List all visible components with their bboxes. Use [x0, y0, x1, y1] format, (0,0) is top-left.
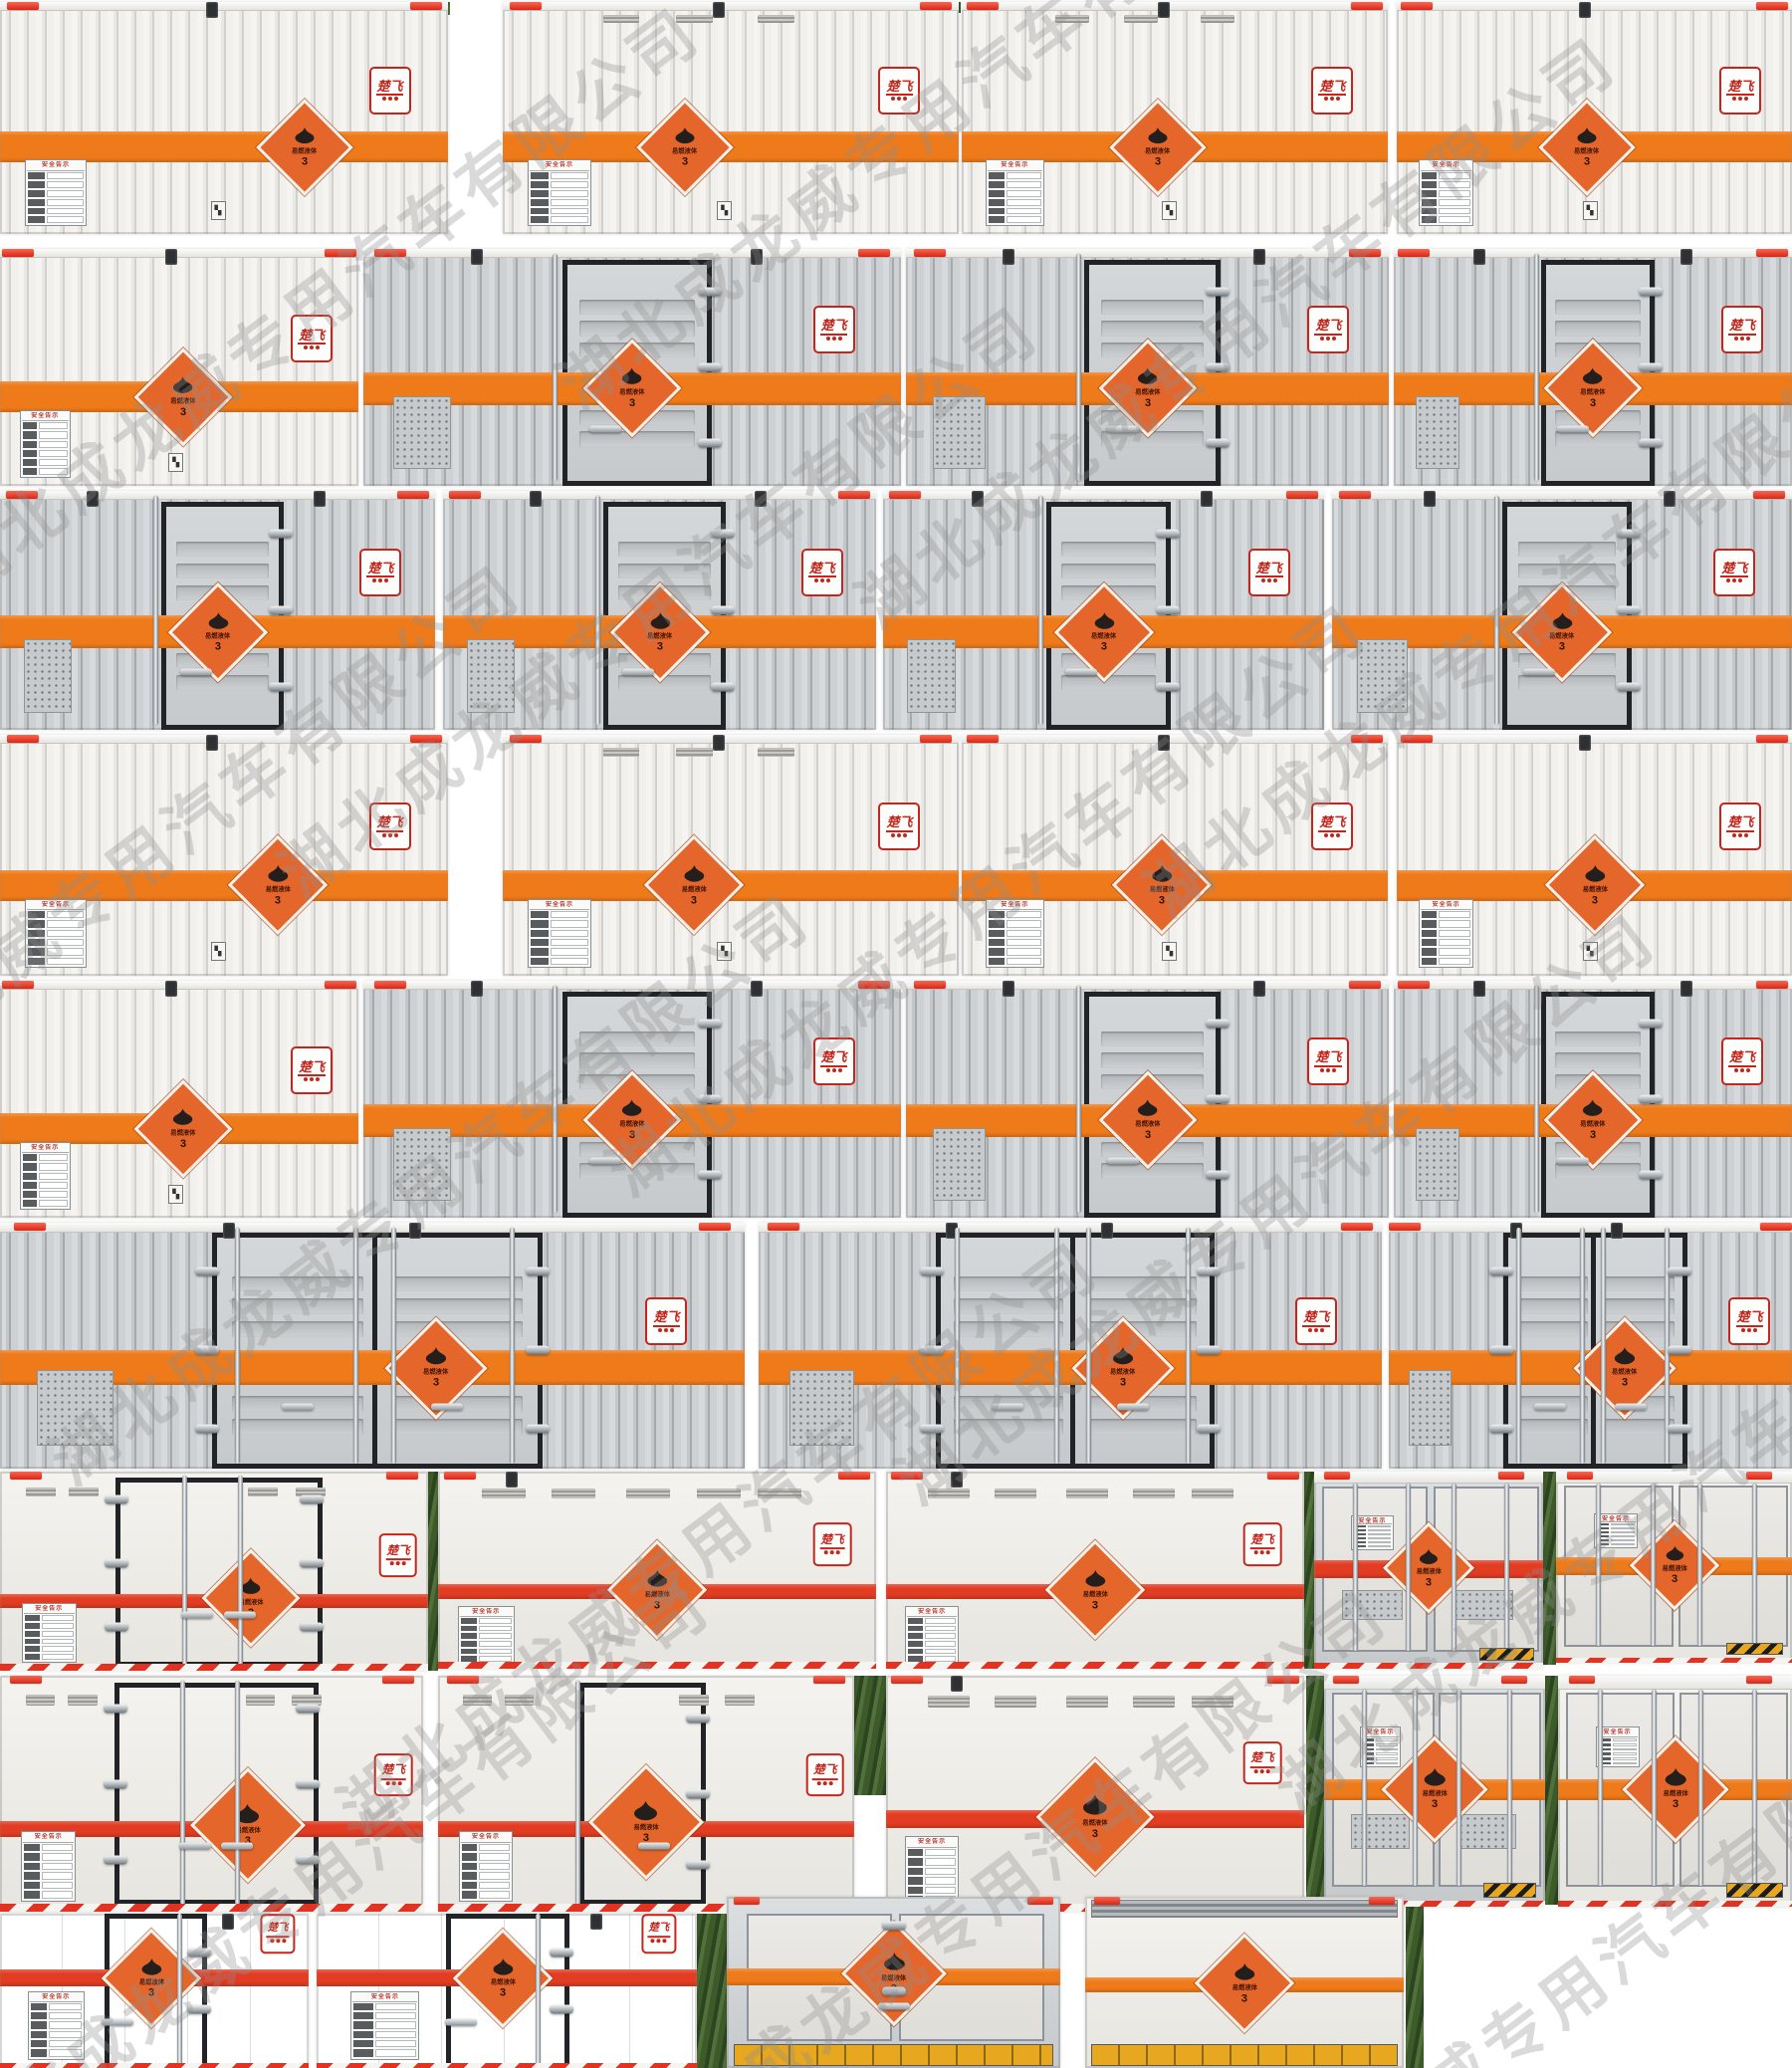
safety-notice-row-label: [28, 208, 46, 215]
placard-label: 易燃液体: [265, 885, 290, 894]
safety-notice-row-cell: [1439, 190, 1470, 197]
vent-louver: [1201, 15, 1234, 23]
safety-notice-row-label: [23, 450, 37, 457]
safety-notice-row-label: [23, 1191, 37, 1198]
placard-class-number: 3: [1241, 1993, 1247, 2004]
safety-notice-row: [530, 171, 589, 180]
brand-badge-text: 楚飞: [648, 1925, 669, 1936]
perforated-vent-grille: [24, 639, 72, 713]
safety-notice-row: [23, 1890, 74, 1900]
safety-notice-row-cell: [47, 939, 84, 946]
safety-notice-title: 安全告示: [22, 412, 69, 421]
safety-notice-row: [461, 1862, 511, 1872]
door-latch: [471, 981, 483, 997]
red-reflector: [914, 249, 946, 257]
safety-notice-row: [530, 919, 589, 928]
door-handle: [1615, 1404, 1647, 1411]
safety-notice-row-cell: [479, 1633, 512, 1639]
door-panel-recess: [579, 431, 694, 446]
placard-content: 易燃液体3: [654, 115, 717, 178]
safety-notice-row-label: [353, 2012, 372, 2019]
brand-badge: 楚飞: [1295, 1297, 1337, 1345]
perforated-vent-grille: [933, 1128, 986, 1201]
foliage-background: [1406, 1897, 1424, 2068]
safety-notice-row-label: [1422, 920, 1437, 927]
hazard-stripe: [0, 870, 448, 901]
safety-notice-row: [988, 919, 1043, 928]
brand-badge-rule: [267, 1937, 289, 1939]
vent-louver: [505, 1695, 534, 1706]
safety-notice-row: [27, 215, 86, 224]
safety-notice-row: [27, 947, 86, 956]
safety-notice-plate: 安全告示: [986, 899, 1045, 968]
small-label-tag: ▚: [168, 1185, 183, 1204]
vent-louver: [758, 1489, 801, 1498]
roof-rail: [1397, 2, 1792, 11]
safety-notice-row: [907, 1848, 957, 1858]
placard-class-number: 3: [1092, 1600, 1098, 1611]
safety-notice-row-cell: [479, 1844, 510, 1852]
placard-label: 易燃液体: [1111, 1367, 1136, 1376]
door-panel-recess: [579, 1163, 694, 1178]
door-hinge: [1206, 1019, 1230, 1028]
placard-label: 易燃液体: [1135, 1120, 1160, 1129]
door-latch: [165, 249, 177, 265]
door-handle: [1523, 669, 1555, 676]
safety-notice-row-cell: [39, 468, 68, 475]
brand-badge-text: 楚飞: [1303, 1310, 1329, 1324]
door-hinge: [711, 682, 735, 691]
door-hinge: [195, 1346, 219, 1355]
safety-notice-row-label: [989, 930, 1006, 937]
safety-notice-row-label: [908, 1887, 923, 1895]
safety-notice-row: [988, 947, 1043, 956]
small-label-tag: ▚: [211, 201, 226, 220]
red-reflector: [1756, 249, 1788, 257]
placard-content: 易燃液体3: [1561, 356, 1625, 420]
small-label-tag: ▚: [211, 942, 226, 961]
red-reflector: [768, 1223, 799, 1231]
placard-content: 易燃液体3: [1056, 1778, 1134, 1856]
brand-badge-emblem: [1732, 833, 1748, 837]
safety-notice-row-label: [1422, 208, 1437, 215]
red-reflector: [1267, 1676, 1299, 1684]
brand-badge: 楚飞: [801, 549, 843, 596]
brand-badge-emblem: [824, 1550, 840, 1554]
placard-class-number: 3: [1159, 895, 1165, 906]
door-latch: [1158, 735, 1170, 751]
door-hinge: [1639, 1019, 1663, 1028]
perforated-vent-grille: [1342, 1590, 1404, 1620]
brand-badge-text: 楚飞: [809, 562, 835, 575]
red-reflector: [1351, 2, 1383, 10]
door-lock-rod: [1651, 1484, 1656, 1646]
safety-notice-row: [24, 1653, 76, 1661]
safety-notice-row: [27, 207, 86, 216]
safety-notice-row-label: [989, 190, 1006, 197]
door-lock-rod: [1406, 1484, 1411, 1651]
vent-louver: [676, 748, 713, 756]
door-latch: [751, 249, 763, 265]
safety-notice-row-cell: [1007, 911, 1041, 918]
brand-badge: 楚飞: [878, 67, 920, 115]
door-hinge: [269, 530, 293, 539]
safety-notice-row-label: [462, 1844, 477, 1852]
red-reflector: [813, 1676, 845, 1684]
vent-louver: [68, 1695, 98, 1706]
safety-notice-row: [988, 189, 1043, 198]
door-panel-recess: [1101, 1052, 1204, 1067]
safety-notice-row-cell: [49, 2049, 82, 2056]
flame-icon: [1415, 1548, 1442, 1565]
roof-vent-louvers: [1091, 1900, 1397, 1917]
safety-notice-row-cell: [925, 1641, 956, 1647]
brand-badge-emblem: [1734, 1068, 1750, 1072]
placard-class-number: 3: [148, 1988, 154, 1999]
brand-badge-text: 楚飞: [1319, 815, 1345, 829]
safety-notice-row: [22, 1172, 69, 1181]
brand-badge-rule: [819, 1547, 844, 1549]
safety-notice-row-label: [1422, 911, 1437, 918]
safety-notice-row-cell: [375, 2040, 416, 2047]
truck-photo-r8t1: 易燃液体3楚飞安全告示: [0, 1676, 423, 1912]
door-panel-recess: [1518, 564, 1617, 578]
safety-notice-row-label: [25, 1615, 40, 1621]
safety-notice-row-cell: [1368, 1537, 1391, 1539]
safety-notice-row: [1421, 929, 1472, 938]
safety-notice-row-cell: [479, 1891, 510, 1899]
safety-notice-row-label: [28, 199, 46, 206]
safety-notice-row: [988, 180, 1043, 189]
truck-photo-r7t5: 易燃液体3安全告示: [1556, 1472, 1792, 1663]
placard-label: 易燃液体: [138, 1977, 163, 1986]
safety-notice-row-cell: [39, 1163, 68, 1170]
brand-badge-rule: [366, 575, 394, 577]
placard-content: 易燃液体3: [600, 1088, 664, 1152]
perforated-vent-grille: [467, 639, 515, 713]
placard-content: 易燃液体3: [1115, 1088, 1179, 1152]
door-panel-recess: [1603, 1298, 1674, 1314]
safety-notice-row: [27, 189, 86, 198]
red-reflector: [858, 249, 890, 257]
door-lock-rod: [391, 1228, 396, 1464]
door-handle: [179, 1842, 211, 1849]
brand-badge: 楚飞: [379, 1533, 418, 1577]
door-lock-rod: [235, 1681, 240, 1905]
brand-badge-text: 楚飞: [1727, 815, 1753, 829]
door-handle: [638, 1842, 670, 1849]
safety-notice-row: [1362, 1761, 1400, 1766]
door-panel-recess: [1603, 1276, 1674, 1292]
door-hinge: [711, 606, 735, 615]
safety-notice-row-label: [461, 1633, 477, 1639]
safety-notice-row-cell: [39, 422, 68, 429]
red-reflector: [1349, 249, 1381, 257]
safety-notice-row-label: [1422, 948, 1437, 955]
brand-badge: 楚飞: [1307, 306, 1349, 353]
flame-icon: [1661, 1545, 1686, 1562]
placard-class-number: 3: [1591, 895, 1597, 906]
door-lock-rod: [1076, 986, 1081, 1213]
door-lock-rod: [510, 1228, 515, 1464]
safety-notice-row-label: [353, 2049, 372, 2056]
safety-notice-row-cell: [1007, 958, 1041, 965]
brand-badge: 楚飞: [1719, 67, 1761, 115]
safety-notice-row-cell: [479, 1872, 510, 1880]
red-reflector: [1341, 1223, 1373, 1231]
door-hinge: [526, 1346, 550, 1355]
red-reflector: [510, 735, 542, 743]
placard-label: 易燃液体: [1150, 885, 1175, 894]
safety-notice-row-label: [989, 216, 1006, 223]
brand-badge-text: 楚飞: [376, 815, 402, 829]
door-handle: [102, 2018, 133, 2025]
roof-rail: [1332, 491, 1792, 500]
truck-photo-r6t1: 易燃液体3楚飞: [0, 1223, 745, 1469]
safety-notice-row-cell: [47, 199, 84, 206]
safety-notice-row-cell: [39, 450, 68, 457]
safety-notice-row-cell: [1007, 208, 1041, 215]
door-lock-rod: [1452, 1484, 1456, 1651]
door-panel-recess: [618, 564, 711, 578]
placard-class-number: 3: [214, 641, 220, 652]
red-reflector: [410, 735, 442, 743]
red-reflector: [1027, 1897, 1053, 1905]
door-lock-rod: [1186, 1228, 1191, 1464]
placard-content: 易燃液体3: [150, 1097, 214, 1161]
safety-notice-row-cell: [925, 1877, 956, 1885]
vent-louver: [69, 1488, 99, 1496]
safety-notice-title: 安全告示: [1598, 1728, 1638, 1737]
placard-label: 易燃液体: [1145, 146, 1170, 155]
door-hinge: [1156, 606, 1180, 615]
safety-notice-row-cell: [1439, 939, 1470, 946]
truck-photo-r2t4: 易燃液体3楚飞: [1394, 249, 1792, 486]
perforated-vent-grille: [1409, 1370, 1452, 1446]
safety-notice-row-cell: [1368, 1525, 1391, 1527]
red-reflector: [10, 1472, 42, 1480]
safety-notice-row-label: [23, 1154, 37, 1161]
truck-photo-r4t2: 易燃液体3楚飞安全告示▚: [503, 735, 959, 976]
roof-rail: [0, 249, 358, 258]
placard-content: 易燃液体3: [662, 853, 727, 918]
safety-notice-plate: 安全告示: [458, 1606, 515, 1665]
truck-photo-r7t1: 易燃液体3楚飞安全告示: [0, 1472, 428, 1671]
door-lock-rod: [1086, 1228, 1091, 1464]
safety-notice-row: [1421, 180, 1472, 189]
door-handle: [445, 2018, 477, 2025]
hazard-placard: 易燃液体3: [1538, 99, 1635, 195]
safety-notice-row-cell: [479, 1863, 510, 1871]
red-reflector: [6, 491, 38, 499]
door-hinge: [296, 1780, 320, 1789]
perforated-vent-grille: [1357, 639, 1408, 713]
door-hinge: [195, 1425, 219, 1434]
door-latch: [1253, 249, 1265, 265]
safety-notice-row-label: [24, 1872, 39, 1880]
safety-notice-row-cell: [1376, 1757, 1398, 1760]
foliage-background: [428, 1472, 438, 1671]
safety-notice-row: [1421, 189, 1472, 198]
brand-badge-emblem: [1324, 833, 1340, 837]
safety-notice-row-label: [531, 181, 549, 188]
safety-notice-row-cell: [1439, 181, 1470, 188]
safety-notice-title: 安全告示: [1596, 1515, 1636, 1522]
door-panel-recess: [579, 300, 694, 315]
flame-icon: [1572, 126, 1601, 144]
small-label-tag: ▚: [1583, 942, 1598, 961]
flame-icon: [645, 611, 675, 630]
vent-louver: [246, 1695, 276, 1706]
door-panel-recess: [391, 1419, 523, 1435]
door-latch: [530, 491, 542, 507]
flame-icon: [629, 1800, 664, 1822]
placard-label: 易燃液体: [673, 146, 698, 155]
safety-notice-row: [461, 1843, 511, 1853]
door-panel-recess: [1087, 1298, 1197, 1314]
roof-rail: [0, 2, 448, 11]
safety-notice-row: [988, 957, 1043, 966]
safety-notice-row: [23, 1843, 74, 1853]
brand-badge-rule: [385, 1558, 410, 1560]
perforated-vent-grille: [393, 396, 452, 469]
safety-notice-row-cell: [47, 930, 84, 937]
door-latch: [87, 491, 99, 507]
safety-notice-row-label: [989, 939, 1006, 946]
flame-icon: [1133, 368, 1163, 386]
brand-badge-emblem: [1741, 1328, 1757, 1332]
safety-notice-row-cell: [47, 208, 84, 215]
safety-notice-row-cell: [1613, 1748, 1637, 1751]
door-hinge: [296, 1705, 320, 1714]
safety-notice-row-cell: [1007, 190, 1041, 197]
door-latch: [1201, 491, 1213, 507]
roof-rail: [363, 981, 901, 990]
perforated-vent-grille: [789, 1370, 854, 1446]
safety-notice-title: 安全告示: [1362, 1728, 1400, 1737]
placard-label: 易燃液体: [633, 1823, 658, 1832]
placard-class-number: 3: [433, 1378, 439, 1389]
door-lock-rod: [1598, 1690, 1603, 1886]
vent-louver: [26, 1695, 56, 1706]
door-lock-rod: [1752, 1484, 1757, 1646]
brand-badge-rule: [1728, 334, 1756, 336]
safety-notice-row: [1421, 215, 1472, 224]
placard-class-number: 3: [1426, 1577, 1432, 1588]
safety-notice-row-label: [24, 1891, 39, 1899]
safety-notice-row-cell: [39, 441, 68, 448]
rear-bumper-stripes: [886, 1662, 1304, 1669]
vent-louver: [758, 15, 794, 23]
door-handle: [1534, 1404, 1566, 1411]
door-handle: [1107, 425, 1139, 432]
safety-notice-plate: 安全告示: [21, 1831, 76, 1901]
door-hinge: [105, 1559, 128, 1568]
safety-notice-row-label: [23, 459, 37, 466]
safety-notice-row: [1596, 1542, 1636, 1546]
red-reflector: [1398, 249, 1430, 257]
safety-notice-row: [1353, 1544, 1392, 1548]
safety-notice-title: 安全告示: [352, 1993, 417, 2002]
door-latch: [713, 2, 725, 18]
door-lock-rod: [536, 1914, 541, 2068]
safety-notice-row: [907, 1640, 957, 1648]
vent-louver: [1192, 1489, 1233, 1498]
safety-notice-row-label: [1422, 181, 1437, 188]
safety-notice-row-cell: [1611, 1527, 1635, 1529]
safety-notice-row-label: [353, 2021, 372, 2028]
vent-louver: [1124, 15, 1158, 23]
vent-louver: [928, 1489, 970, 1498]
safety-notice-row: [460, 1617, 513, 1625]
safety-notice-row: [530, 957, 589, 966]
brand-badge-emblem: [1261, 578, 1277, 582]
door-hinge: [920, 1267, 944, 1276]
brand-badge: 楚飞: [1307, 1037, 1349, 1085]
placard-content: 易燃液体3: [627, 599, 692, 664]
truck-photo-r2t1: 易燃液体3楚飞安全告示▚: [0, 249, 358, 486]
door-panel-recess: [232, 1321, 363, 1337]
placard-content: 易燃液体3: [118, 1947, 183, 2011]
flame-icon: [642, 1569, 672, 1588]
flame-icon: [1419, 1767, 1451, 1787]
brand-badge-emblem: [304, 1077, 320, 1081]
door-handle: [1117, 1404, 1149, 1411]
safety-notice-row-label: [531, 930, 549, 937]
brand-badge-text: 楚飞: [268, 1925, 289, 1936]
safety-notice-row-cell: [42, 1891, 74, 1899]
flame-icon: [420, 1347, 451, 1366]
door-lock-rod: [1534, 986, 1539, 1213]
safety-notice-row-cell: [1376, 1743, 1398, 1746]
door-panel-recess: [232, 1419, 363, 1435]
vent-louver: [676, 15, 713, 23]
placard-label: 易燃液体: [1135, 388, 1160, 397]
safety-notice-row-cell: [47, 190, 84, 197]
brand-badge-rule: [298, 1074, 326, 1076]
safety-notice-row-label: [461, 1641, 477, 1647]
safety-notice-row-label: [31, 2012, 47, 2019]
safety-notice-row-cell: [47, 181, 84, 188]
vent-louver: [552, 1489, 595, 1498]
placard-content: 易燃液体3: [600, 356, 664, 420]
placard-label: 易燃液体: [644, 1589, 669, 1598]
red-reflector: [1401, 735, 1433, 743]
door-lock-rod: [1601, 1228, 1606, 1464]
door-hinge: [1639, 439, 1663, 448]
safety-notice-row: [530, 207, 589, 216]
brand-badge: 楚飞: [1719, 803, 1761, 850]
safety-notice-row-label: [989, 948, 1006, 955]
vent-louver: [463, 1695, 492, 1706]
placard-label: 易燃液体: [1549, 631, 1574, 640]
safety-notice-row-cell: [1439, 172, 1470, 179]
door-hinge: [1197, 1267, 1221, 1276]
perforated-vent-grille: [1416, 396, 1459, 469]
door-lock-rod: [177, 1914, 182, 2068]
door-hinge: [698, 1019, 722, 1028]
brand-badge: 楚飞: [369, 67, 411, 115]
door-panel-recess: [176, 542, 269, 557]
truck-photo-r1t2: 易燃液体3楚飞安全告示▚: [503, 2, 959, 234]
placard-label: 易燃液体: [682, 885, 707, 894]
brand-badge-emblem: [390, 1561, 406, 1565]
flame-icon: [1578, 1100, 1608, 1118]
placard-content: 易燃液体3: [210, 1788, 286, 1864]
safety-notice-title: 安全告示: [907, 1608, 957, 1617]
door-panel-recess: [1101, 321, 1204, 336]
placard-class-number: 3: [654, 1600, 660, 1611]
